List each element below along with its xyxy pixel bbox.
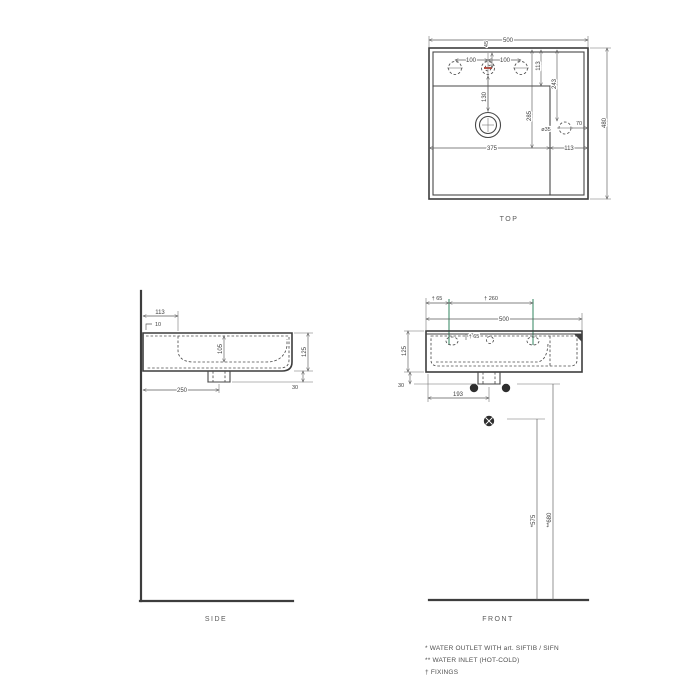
dim-side-deck-depth: 113: [155, 310, 165, 316]
dim-basin-depth: 285: [527, 110, 533, 121]
dim-right-hole-dia: ø35: [541, 127, 550, 133]
dim-side-drain-stub: 30: [292, 385, 298, 391]
front-drain-stub: [478, 372, 500, 384]
legend-fixings: † FIXINGS: [425, 669, 459, 676]
dim-top-depth: 480: [602, 117, 608, 128]
legend: * WATER OUTLET WITH art. SIFTIB / SIFN *…: [425, 645, 559, 676]
top-view-outer-rim: [429, 48, 588, 199]
dim-hole-setback: 45: [484, 41, 490, 47]
tap-hole-left: [447, 62, 463, 75]
dim-hole-right-spacing: 100: [500, 58, 511, 64]
water-inlet-right: [502, 384, 510, 392]
dim-right-hole-from-back: 243: [552, 78, 558, 89]
washbasin-technical-drawing: 500 480 100 100 45 113 285 243 ø35 70 13…: [0, 0, 700, 700]
dim-deck-depth: 113: [536, 61, 542, 71]
water-outlet: [484, 416, 494, 426]
dim-fixing-depth: † 65: [469, 334, 480, 340]
front-basin-hidden: [431, 336, 577, 366]
side-view: 113 10 105 125 30 250 SIDE: [140, 291, 313, 623]
dim-side-drain-from-wall: 250: [177, 388, 188, 394]
dim-right-hole-from-edge: 70: [576, 121, 582, 127]
front-view: † 65 † 65 † 260 500 125: [398, 296, 588, 623]
dim-drain-from-deck: 130: [482, 91, 488, 102]
dim-side-height: 125: [302, 346, 308, 357]
dim-bottom-left: 375: [487, 146, 498, 152]
dim-hole-left-spacing: 100: [466, 58, 477, 64]
dim-front-width: 500: [499, 317, 510, 323]
dim-side-inner-depth: 105: [218, 343, 224, 354]
dim-front-drain-stub: 30: [398, 383, 404, 389]
dim-fixing-from-edge: † 65: [432, 296, 443, 302]
legend-water-inlet: ** WATER INLET (HOT-COLD): [425, 657, 519, 664]
top-view-label: TOP: [500, 216, 519, 223]
dim-inlet-height: **680: [547, 512, 553, 527]
dim-side-wall-gap: 10: [155, 322, 161, 328]
dim-drain-from-left: 193: [453, 392, 464, 398]
side-view-label: SIDE: [205, 616, 227, 623]
dim-front-height: 125: [402, 345, 408, 356]
front-tap-hole-left: [446, 337, 458, 345]
dim-fixing-spacing: † 260: [484, 296, 498, 302]
front-tap-hole-center: [487, 337, 494, 344]
water-inlet-left: [470, 384, 478, 392]
dim-outlet-height: *575: [531, 514, 537, 527]
drain-top: [476, 113, 501, 138]
top-view: 500 480 100 100 45 113 285 243 ø35 70 13…: [429, 36, 611, 223]
dim-bottom-right: 113: [564, 146, 574, 152]
dim-top-width: 500: [503, 38, 514, 44]
front-basin-floor-hidden: [436, 344, 548, 362]
front-corner-overflow: [574, 334, 582, 342]
tap-hole-right: [513, 62, 529, 75]
side-drain-stub: [208, 371, 230, 382]
front-view-label: FRONT: [482, 616, 514, 623]
deck-hole-right: [557, 122, 573, 134]
legend-water-outlet: * WATER OUTLET WITH art. SIFTIB / SIFN: [425, 645, 559, 652]
side-basin-hidden: [178, 336, 287, 362]
